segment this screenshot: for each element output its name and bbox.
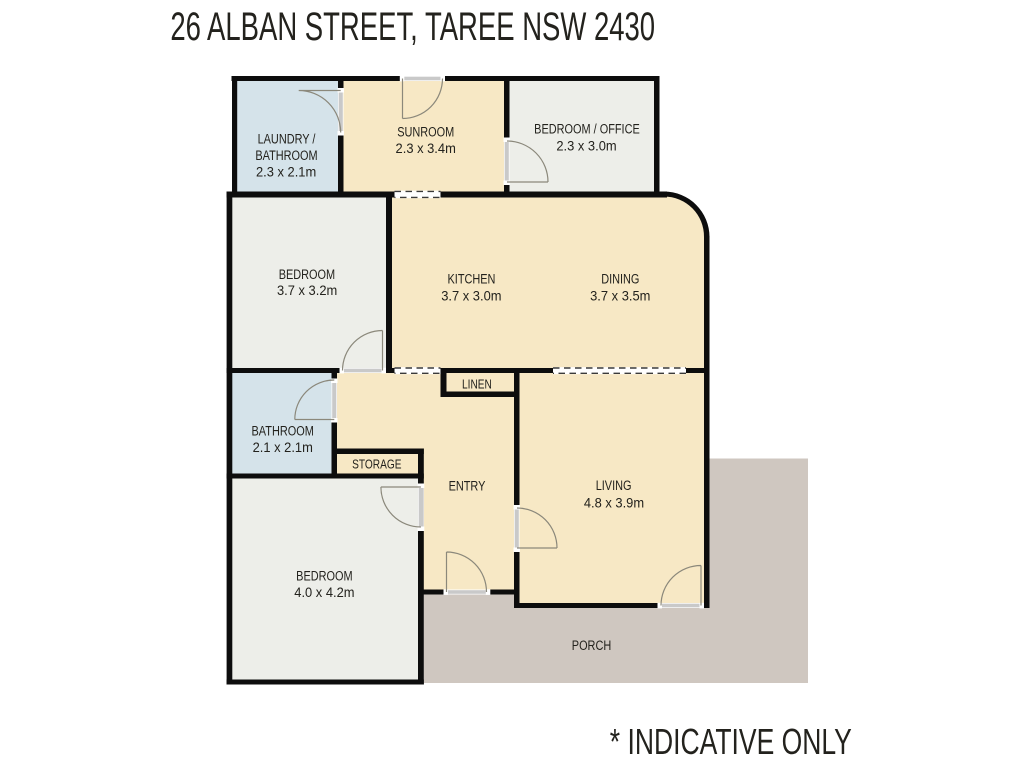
svg-text:3.7 x 3.0m: 3.7 x 3.0m [441,288,501,304]
svg-text:SUNROOM: SUNROOM [397,124,454,140]
svg-text:2.3 x 3.0m: 2.3 x 3.0m [556,138,616,154]
svg-text:STORAGE: STORAGE [352,457,402,471]
svg-text:26 ALBAN STREET, TAREE NSW 243: 26 ALBAN STREET, TAREE NSW 2430 [170,5,655,49]
svg-text:4.8 x 3.9m: 4.8 x 3.9m [584,495,644,511]
svg-text:2.1 x 2.1m: 2.1 x 2.1m [253,440,313,456]
svg-text:LAUNDRY /: LAUNDRY / [258,131,316,147]
svg-text:4.0 x 4.2m: 4.0 x 4.2m [294,584,354,600]
svg-text:BEDROOM: BEDROOM [296,568,352,584]
svg-text:PORCH: PORCH [572,638,611,654]
svg-text:3.7 x 3.2m: 3.7 x 3.2m [277,283,337,299]
svg-text:* INDICATIVE ONLY: * INDICATIVE ONLY [610,721,852,762]
svg-text:BATHROOM: BATHROOM [252,423,314,439]
svg-text:BEDROOM: BEDROOM [279,266,335,282]
svg-text:2.3 x 3.4m: 2.3 x 3.4m [396,140,456,156]
svg-text:LIVING: LIVING [596,478,632,494]
svg-text:LINEN: LINEN [462,377,492,391]
svg-text:2.3 x 2.1m: 2.3 x 2.1m [256,164,316,180]
svg-text:3.7 x 3.5m: 3.7 x 3.5m [590,288,650,304]
svg-text:BATHROOM: BATHROOM [255,148,317,164]
svg-text:DINING: DINING [601,271,639,287]
svg-text:BEDROOM / OFFICE: BEDROOM / OFFICE [534,121,640,137]
svg-text:ENTRY: ENTRY [449,478,486,494]
svg-text:KITCHEN: KITCHEN [448,271,496,287]
